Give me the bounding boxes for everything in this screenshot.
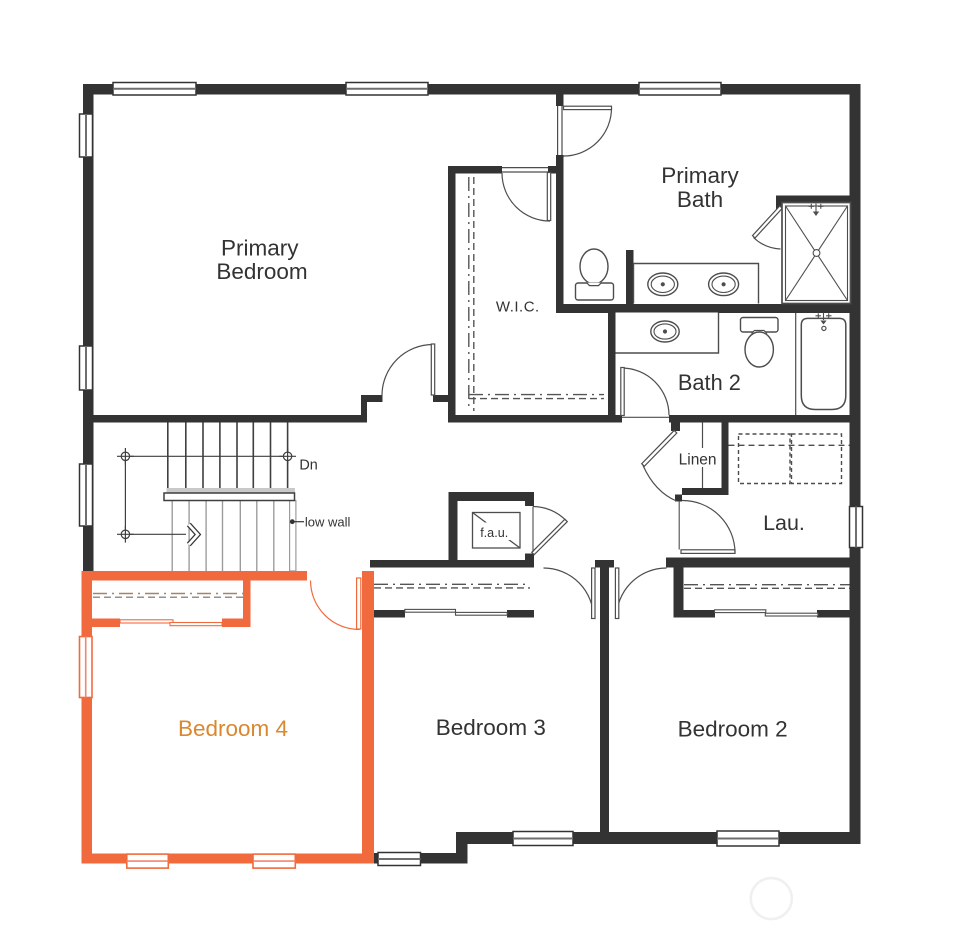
svg-text:f.a.u.: f.a.u. (480, 526, 508, 540)
svg-text:Bedroom 3: Bedroom 3 (436, 715, 546, 740)
svg-text:Bedroom 2: Bedroom 2 (678, 717, 788, 742)
svg-text:Linen: Linen (679, 452, 717, 469)
svg-text:Bath 2: Bath 2 (678, 370, 741, 395)
svg-text:Dn: Dn (299, 458, 317, 474)
svg-text:Bath: Bath (677, 187, 723, 212)
svg-text:Primary: Primary (221, 236, 299, 261)
svg-text:low wall: low wall (305, 515, 351, 530)
svg-text:Bedroom 4: Bedroom 4 (178, 716, 288, 741)
svg-text:Lau.: Lau. (763, 511, 805, 535)
svg-text:W.I.C.: W.I.C. (496, 299, 540, 316)
svg-text:Bedroom: Bedroom (216, 259, 307, 284)
svg-text:Primary: Primary (661, 163, 739, 188)
